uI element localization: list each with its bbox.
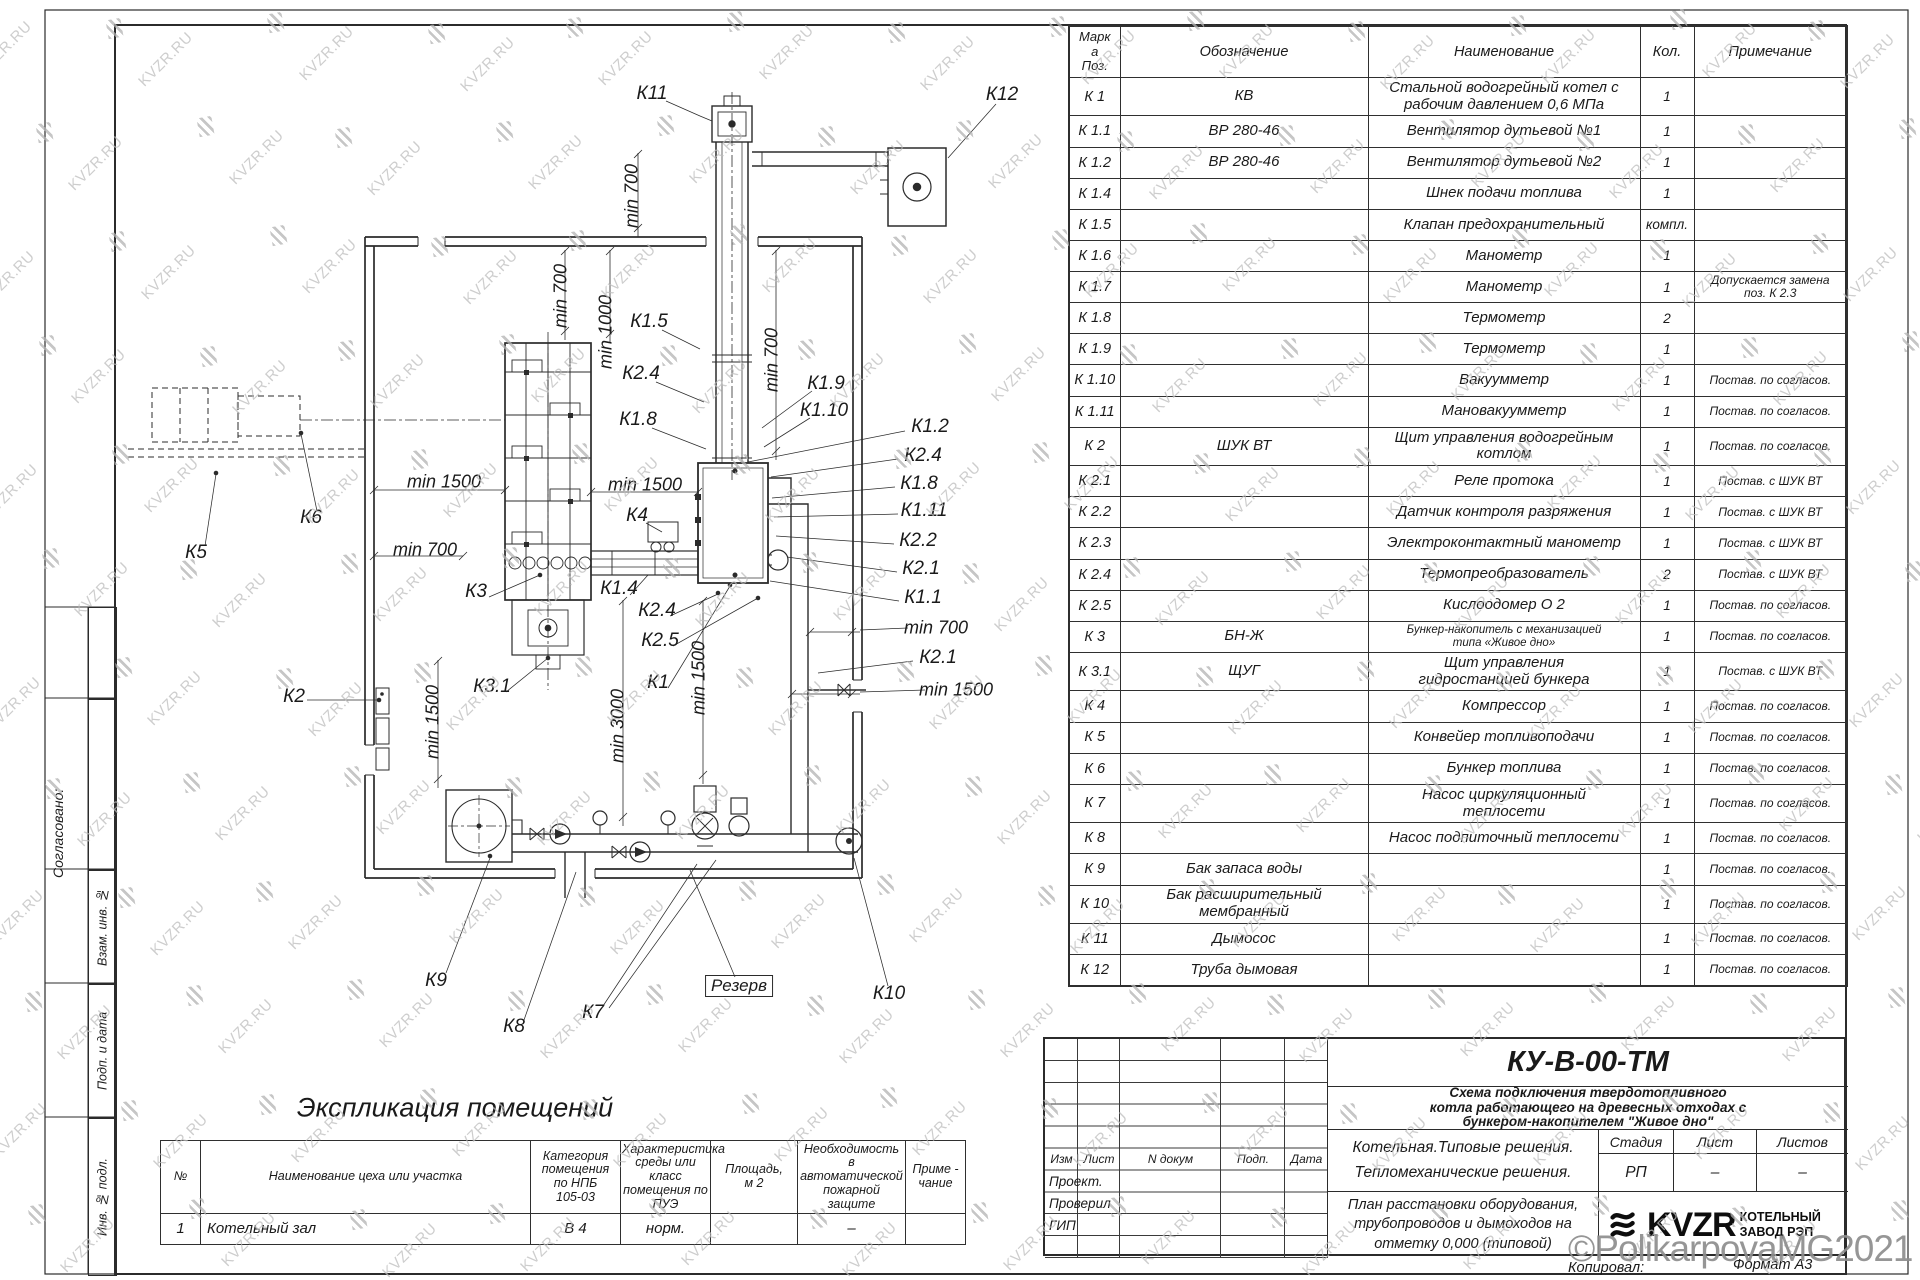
plan-dimension-label: min 1000 xyxy=(596,295,617,369)
spec-cell-name: Реле протока xyxy=(1368,466,1640,497)
spec-cell-note: Постав. по согласов. xyxy=(1694,396,1847,427)
explication-header: Необходимость в автоматической пожарной … xyxy=(798,1141,906,1214)
explication-header: Приме - чание xyxy=(906,1141,966,1214)
plan-position-label: К12 xyxy=(986,84,1018,106)
spec-cell-note xyxy=(1694,147,1847,178)
spec-header-row: Марк а Поз. Обозначение Наименование Кол… xyxy=(1069,26,1847,78)
explication-row: 1Котельный залВ 4норм.– xyxy=(161,1214,966,1245)
spec-cell-des: БН-Ж xyxy=(1120,621,1368,652)
plan-dimension-label: min 700 xyxy=(393,540,457,561)
spec-cell-note xyxy=(1694,116,1847,147)
plan-position-label: К1.10 xyxy=(800,400,848,422)
spec-cell-qty: 1 xyxy=(1640,334,1694,365)
spec-cell-name: Датчик контроля разряжения xyxy=(1368,497,1640,528)
plan-position-label: К2.5 xyxy=(641,630,679,652)
spec-cell-note: Постав. по согласов. xyxy=(1694,691,1847,722)
spec-cell-pos: К 2.1 xyxy=(1069,466,1120,497)
spec-cell-pos: К 1.4 xyxy=(1069,178,1120,209)
spec-cell-name: Вакуумметр xyxy=(1368,365,1640,396)
spec-row: К 1.5Клапан предохранительныйкомпл. xyxy=(1069,209,1847,240)
spec-cell-note xyxy=(1694,78,1847,116)
plan-dimension-label: min 700 xyxy=(762,328,783,392)
spec-cell-pos: К 2.2 xyxy=(1069,497,1120,528)
spec-cell-name: Стальной водогрейный котел с рабочим дав… xyxy=(1368,78,1640,116)
stage-value: – xyxy=(1674,1154,1757,1192)
spec-cell-qty: 1 xyxy=(1640,528,1694,559)
spec-cell-name: Компрессор xyxy=(1368,691,1640,722)
flue-box xyxy=(880,148,946,226)
change-table: ИзмЛистN докумПодп.Дата Проект.ПроверилГ… xyxy=(1045,1039,1328,1258)
plan-dimension-label: min 1500 xyxy=(689,641,710,715)
spec-cell-note: Постав. по согласов. xyxy=(1694,722,1847,753)
spec-cell-qty: 1 xyxy=(1640,147,1694,178)
plan-position-label: К1.8 xyxy=(619,409,657,431)
plan-dimension-label: min 1500 xyxy=(608,475,682,496)
stage-value: – xyxy=(1757,1154,1848,1192)
spec-cell-note xyxy=(1694,334,1847,365)
stage-value: РП xyxy=(1599,1154,1674,1192)
spec-cell-pos: К 3.1 xyxy=(1069,652,1120,690)
spec-row: К 1.6Манометр1 xyxy=(1069,240,1847,271)
change-col-label: Дата xyxy=(1285,1148,1328,1170)
stage-headers: СтадияЛистЛистов xyxy=(1599,1130,1848,1154)
spec-cell-qty: 1 xyxy=(1640,178,1694,209)
explication-header: Категория помещения по НПБ 105-03 xyxy=(531,1141,621,1214)
spec-cell-note: Допускается замена поз. К 2.3 xyxy=(1694,272,1847,303)
spec-row: К 5Конвейер топливоподачи1Постав. по сог… xyxy=(1069,722,1847,753)
spec-cell-pos: К 1.5 xyxy=(1069,209,1120,240)
spec-cell-qty: 1 xyxy=(1640,466,1694,497)
explication-cell xyxy=(906,1214,966,1245)
podp-label: Подп. и дата xyxy=(89,984,116,1118)
plan-dimension-label: min 1500 xyxy=(407,472,481,493)
spec-cell-qty: 1 xyxy=(1640,427,1694,465)
spec-cell-des: ШУК ВТ xyxy=(1120,427,1368,465)
spec-cell-note: Постав. по согласов. xyxy=(1694,955,1847,986)
explication-header: Характеристика среды или класс помещения… xyxy=(621,1141,711,1214)
spec-cell-pos: К 1 xyxy=(1069,78,1120,116)
spec-header-pos: Марк а Поз. xyxy=(1069,26,1120,78)
spec-cell-pos: К 1.2 xyxy=(1069,147,1120,178)
plan-dimension-label: min 700 xyxy=(904,618,968,639)
spec-cell-pos: К 1.10 xyxy=(1069,365,1120,396)
plan-position-label: К2 xyxy=(283,686,305,708)
spec-cell-qty: 1 xyxy=(1640,116,1694,147)
spec-row: К 1.1ВР 280-46Вентилятор дутьевой №11 xyxy=(1069,116,1847,147)
spec-cell-qty: 1 xyxy=(1640,590,1694,621)
project-name: Котельная.Типовые решения. Тепломеханиче… xyxy=(1328,1130,1599,1192)
margin-cell-podp: Подп. и дата xyxy=(88,983,117,1119)
spec-cell-name: Клапан предохранительный xyxy=(1368,209,1640,240)
spec-cell-note: Постав. по согласов. xyxy=(1694,784,1847,822)
spec-row: К 3БН-ЖБункер-накопитель с механизацией … xyxy=(1069,621,1847,652)
explication-table: №Наименование цеха или участкаКатегория … xyxy=(160,1140,965,1240)
plan-position-label: К11 xyxy=(637,83,668,105)
fuel-screw xyxy=(509,557,591,569)
plan-position-label: К1.9 xyxy=(807,373,845,395)
spec-cell-name: Термометр xyxy=(1368,334,1640,365)
spec-row: К 12Труба дымовая1Постав. по согласов. xyxy=(1069,955,1847,986)
plan-position-label: К3.1 xyxy=(473,676,511,698)
role-label: ГИП xyxy=(1049,1214,1149,1236)
spec-cell-note xyxy=(1694,209,1847,240)
spec-cell-note: Постав. по согласов. xyxy=(1694,427,1847,465)
spec-cell-qty: 1 xyxy=(1640,365,1694,396)
role-label: Проект. xyxy=(1049,1170,1149,1192)
explication-cell: норм. xyxy=(621,1214,711,1245)
plan-position-label: К3 xyxy=(465,581,487,603)
spec-cell-des: Труба дымовая xyxy=(1120,955,1368,986)
spec-cell-name xyxy=(1368,923,1640,954)
spec-cell-pos: К 4 xyxy=(1069,691,1120,722)
spec-cell-name: Манометр xyxy=(1368,272,1640,303)
spec-cell-pos: К 11 xyxy=(1069,923,1120,954)
spec-cell-des xyxy=(1120,334,1368,365)
spec-row: К 1.10Вакуумметр1Постав. по согласов. xyxy=(1069,365,1847,396)
spec-cell-name: Щит управления водогрейным котлом xyxy=(1368,427,1640,465)
water-tank xyxy=(446,790,512,862)
spec-cell-note xyxy=(1694,303,1847,334)
spec-cell-qty: 1 xyxy=(1640,823,1694,854)
title-block: ИзмЛистN докумПодп.Дата Проект.ПроверилГ… xyxy=(1043,1037,1846,1256)
spec-cell-qty: 1 xyxy=(1640,885,1694,923)
margin-cell xyxy=(88,607,117,700)
spec-cell-note: Постав. по согласов. xyxy=(1694,823,1847,854)
spec-cell-note: Постав. с ШУК ВТ xyxy=(1694,528,1847,559)
spec-cell-note: Постав. по согласов. xyxy=(1694,854,1847,885)
boiler xyxy=(695,463,788,583)
spec-cell-note: Постав. по согласов. xyxy=(1694,621,1847,652)
spec-cell-pos: К 2.3 xyxy=(1069,528,1120,559)
spec-table-body: К 1КВСтальной водогрейный котел с рабочи… xyxy=(1069,78,1847,987)
spec-cell-name: Манометр xyxy=(1368,240,1640,271)
explication-header-row: №Наименование цеха или участкаКатегория … xyxy=(161,1141,966,1214)
spec-cell-name: Электроконтактный манометр xyxy=(1368,528,1640,559)
plan-position-label: К1.1 xyxy=(904,587,942,609)
spec-cell-name: Мановакуумметр xyxy=(1368,396,1640,427)
spec-header-name: Наименование xyxy=(1368,26,1640,78)
spec-cell-des: Бак расширительный мембранный xyxy=(1120,885,1368,923)
spec-cell-qty: 1 xyxy=(1640,652,1694,690)
spec-cell-des: Дымосос xyxy=(1120,923,1368,954)
title-block-right: КУ-В-00-ТМ Схема подключения твердотопли… xyxy=(1328,1039,1848,1258)
spec-cell-note xyxy=(1694,178,1847,209)
spec-cell-qty: 1 xyxy=(1640,396,1694,427)
plan-position-label: К1.2 xyxy=(911,416,949,438)
spec-cell-name xyxy=(1368,854,1640,885)
spec-cell-pos: К 6 xyxy=(1069,753,1120,784)
explication-cell: Котельный зал xyxy=(201,1214,531,1245)
spec-row: К 1.11Мановакуумметр1Постав. по согласов… xyxy=(1069,396,1847,427)
change-col-label: N докум xyxy=(1120,1148,1221,1170)
spec-row: К 9Бак запаса воды1Постав. по согласов. xyxy=(1069,854,1847,885)
margin-cell xyxy=(88,698,117,871)
explication-cell: В 4 xyxy=(531,1214,621,1245)
plan-dimension-label: min 700 xyxy=(551,264,572,328)
spec-cell-des xyxy=(1120,691,1368,722)
sheet-title: План расстановки оборудования, трубопров… xyxy=(1328,1192,1599,1258)
plan-position-label: К9 xyxy=(425,970,447,992)
spec-cell-qty: 1 xyxy=(1640,272,1694,303)
plan-position-label: К1 xyxy=(647,672,669,694)
spec-cell-des xyxy=(1120,272,1368,303)
spec-cell-qty: 2 xyxy=(1640,303,1694,334)
vzam-label: Взам. инв. № xyxy=(89,870,116,984)
margin-cell-inv: Инв. № подл. xyxy=(88,1117,117,1276)
spec-cell-name: Вентилятор дутьевой №1 xyxy=(1368,116,1640,147)
explication-cell: – xyxy=(798,1214,906,1245)
spec-row: К 4Компрессор1Постав. по согласов. xyxy=(1069,691,1847,722)
spec-cell-des xyxy=(1120,753,1368,784)
plan-position-label: К1.5 xyxy=(630,311,668,333)
spec-cell-name: Насос подпиточный теплосети xyxy=(1368,823,1640,854)
plan-position-label: К2.4 xyxy=(904,445,942,467)
spec-cell-des xyxy=(1120,396,1368,427)
spec-cell-note: Постав. по согласов. xyxy=(1694,753,1847,784)
spec-cell-pos: К 8 xyxy=(1069,823,1120,854)
spec-cell-note: Постав. с ШУК ВТ xyxy=(1694,652,1847,690)
spec-cell-pos: К 1.8 xyxy=(1069,303,1120,334)
spec-cell-name: Кислоодомер О 2 xyxy=(1368,590,1640,621)
plan-position-label: К1.8 xyxy=(900,473,938,495)
drawing-sheet: { "page": { "copyright": "©PolikarpovaMG… xyxy=(0,0,1920,1280)
spec-cell-note: Постав. по согласов. xyxy=(1694,923,1847,954)
spec-cell-des xyxy=(1120,528,1368,559)
spec-cell-qty: 1 xyxy=(1640,78,1694,116)
spec-row: К 6Бункер топлива1Постав. по согласов. xyxy=(1069,753,1847,784)
plan-position-label: К8 xyxy=(503,1016,525,1038)
plan-position-label: К4 xyxy=(626,505,648,527)
spec-cell-pos: К 1.9 xyxy=(1069,334,1120,365)
spec-row: К 7Насос циркуляционный теплосети1Постав… xyxy=(1069,784,1847,822)
spec-cell-qty: 1 xyxy=(1640,240,1694,271)
spec-cell-note: Постав. по согласов. xyxy=(1694,590,1847,621)
spec-cell-des xyxy=(1120,466,1368,497)
spec-cell-note: Постав. с ШУК ВТ xyxy=(1694,559,1847,590)
spec-cell-name: Бункер топлива xyxy=(1368,753,1640,784)
spec-cell-des xyxy=(1120,365,1368,396)
spec-header-designation: Обозначение xyxy=(1120,26,1368,78)
spec-cell-des xyxy=(1120,722,1368,753)
plan-position-label: К2.2 xyxy=(899,530,937,552)
spec-cell-des xyxy=(1120,240,1368,271)
spec-row: К 11Дымосос1Постав. по согласов. xyxy=(1069,923,1847,954)
doc-description: Схема подключения твердотопливного котла… xyxy=(1328,1087,1848,1130)
plan-position-label: К2.4 xyxy=(638,600,676,622)
spec-row: К 1КВСтальной водогрейный котел с рабочи… xyxy=(1069,78,1847,116)
spec-cell-pos: К 1.11 xyxy=(1069,396,1120,427)
spec-cell-name: Конвейер топливоподачи xyxy=(1368,722,1640,753)
external-storage xyxy=(128,388,367,457)
plan-dimension-label: min 3000 xyxy=(608,689,629,763)
spec-cell-des xyxy=(1120,823,1368,854)
spec-row: К 1.4Шнек подачи топлива1 xyxy=(1069,178,1847,209)
plan-position-label: К10 xyxy=(873,983,905,1005)
spec-cell-note: Постав. с ШУК ВТ xyxy=(1694,497,1847,528)
spec-cell-pos: К 1.6 xyxy=(1069,240,1120,271)
spec-cell-pos: К 5 xyxy=(1069,722,1120,753)
fuel-conveyor xyxy=(591,551,698,575)
plan-position-label: К2.1 xyxy=(919,647,957,669)
spec-cell-qty: 1 xyxy=(1640,753,1694,784)
spec-cell-note: Постав. с ШУК ВТ xyxy=(1694,466,1847,497)
spec-cell-name xyxy=(1368,885,1640,923)
spec-cell-des xyxy=(1120,303,1368,334)
spec-cell-pos: К 2.4 xyxy=(1069,559,1120,590)
spec-cell-name: Шнек подачи топлива xyxy=(1368,178,1640,209)
leader-lines xyxy=(205,101,996,1020)
plan-dimension-label: min 1500 xyxy=(919,680,993,701)
spec-cell-pos: К 1.7 xyxy=(1069,272,1120,303)
stage-header: Лист xyxy=(1674,1130,1757,1153)
spec-row: К 2.3Электроконтактный манометр1Постав. … xyxy=(1069,528,1847,559)
spec-row: К 2ШУК ВТЩит управления водогрейным котл… xyxy=(1069,427,1847,465)
change-col-label: Подп. xyxy=(1221,1148,1285,1170)
spec-cell-pos: К 12 xyxy=(1069,955,1120,986)
spec-table: Марк а Поз. Обозначение Наименование Кол… xyxy=(1068,25,1846,987)
change-col-label: Изм xyxy=(1045,1148,1078,1170)
plan-position-label: К6 xyxy=(300,507,322,529)
spec-header-qty: Кол. xyxy=(1640,26,1694,78)
spec-cell-name: Термометр xyxy=(1368,303,1640,334)
spec-cell-des: Бак запаса воды xyxy=(1120,854,1368,885)
spec-cell-qty: 1 xyxy=(1640,691,1694,722)
spec-cell-name xyxy=(1368,955,1640,986)
spec-cell-name: Щит управления гидростанцией бункера xyxy=(1368,652,1640,690)
spec-row: К 2.2Датчик контроля разряжения1Постав. … xyxy=(1069,497,1847,528)
stage-values: РП–– xyxy=(1599,1154,1848,1192)
stage-header: Листов xyxy=(1757,1130,1848,1153)
spec-cell-pos: К 3 xyxy=(1069,621,1120,652)
spec-cell-pos: К 9 xyxy=(1069,854,1120,885)
flue-duct xyxy=(752,152,888,166)
spec-cell-des xyxy=(1120,209,1368,240)
spec-cell-note xyxy=(1694,240,1847,271)
plan-position-label: К1.4 xyxy=(600,578,638,600)
copyright-watermark: ©PolikarpovaMG2021 xyxy=(1568,1228,1913,1270)
spec-cell-des xyxy=(1120,178,1368,209)
spec-cell-qty: 2 xyxy=(1640,559,1694,590)
spec-cell-qty: 1 xyxy=(1640,854,1694,885)
plan-position-label: К1.11 xyxy=(901,500,948,522)
spec-cell-name: Бункер-накопитель с механизацией типа «Ж… xyxy=(1368,621,1640,652)
plan-dimension-label: min 700 xyxy=(622,164,643,228)
spec-cell-qty: 1 xyxy=(1640,784,1694,822)
spec-row: К 10Бак расширительный мембранный1Постав… xyxy=(1069,885,1847,923)
change-cols-row: ИзмЛистN докумПодп.Дата xyxy=(1045,1148,1328,1170)
explication-cell: 1 xyxy=(161,1214,201,1245)
spec-cell-pos: К 2.5 xyxy=(1069,590,1120,621)
spec-row: К 1.7Манометр1Допускается замена поз. К … xyxy=(1069,272,1847,303)
explication-body: 1Котельный залВ 4норм.– xyxy=(161,1214,966,1245)
spec-cell-pos: К 1.1 xyxy=(1069,116,1120,147)
spec-row: К 1.9Термометр1 xyxy=(1069,334,1847,365)
stage-table: СтадияЛистЛистов РП–– xyxy=(1599,1130,1848,1192)
spec-cell-des: ВР 280-46 xyxy=(1120,116,1368,147)
spec-cell-des xyxy=(1120,590,1368,621)
spec-cell-pos: К 10 xyxy=(1069,885,1120,923)
spec-row: К 8Насос подпиточный теплосети1Постав. п… xyxy=(1069,823,1847,854)
change-col-label: Лист xyxy=(1078,1148,1120,1170)
spec-cell-des xyxy=(1120,784,1368,822)
spec-cell-pos: К 7 xyxy=(1069,784,1120,822)
plan-position-label: Резерв xyxy=(705,975,773,997)
spec-row: К 2.4Термопреобразователь2Постав. с ШУК … xyxy=(1069,559,1847,590)
spec-cell-qty: компл. xyxy=(1640,209,1694,240)
spec-row: К 3.1ЩУГЩит управления гидростанцией бун… xyxy=(1069,652,1847,690)
spec-cell-des: КВ xyxy=(1120,78,1368,116)
spec-row: К 2.1Реле протока1Постав. с ШУК ВТ xyxy=(1069,466,1847,497)
stage-header: Стадия xyxy=(1599,1130,1674,1153)
spec-cell-qty: 1 xyxy=(1640,923,1694,954)
spec-cell-qty: 1 xyxy=(1640,722,1694,753)
spec-cell-pos: К 2 xyxy=(1069,427,1120,465)
explication-title: Экспликация помещений xyxy=(297,1093,613,1124)
plan-dimension-label: min 1500 xyxy=(423,685,444,759)
spec-header-note: Примечание xyxy=(1694,26,1847,78)
explication-header: № xyxy=(161,1141,201,1214)
spec-cell-note: Постав. по согласов. xyxy=(1694,365,1847,396)
plan-position-label: К5 xyxy=(185,542,207,564)
approved-label: Сог­ласовано: xyxy=(50,728,66,878)
spec-row: К 2.5Кислоодомер О 21Постав. по согласов… xyxy=(1069,590,1847,621)
spec-row: К 1.8Термометр2 xyxy=(1069,303,1847,334)
role-label: Проверил xyxy=(1049,1192,1149,1214)
plan-position-label: К2.4 xyxy=(622,363,660,385)
explication-cell xyxy=(711,1214,798,1245)
spec-cell-name: Термопреобразователь xyxy=(1368,559,1640,590)
spec-row: К 1.2ВР 280-46Вентилятор дутьевой №21 xyxy=(1069,147,1847,178)
explication-header: Наименование цеха или участка xyxy=(201,1141,531,1214)
plan-position-label: К7 xyxy=(582,1002,604,1024)
spec-cell-des xyxy=(1120,497,1368,528)
spec-cell-name: Насос циркуляционный теплосети xyxy=(1368,784,1640,822)
spec-cell-des: ЩУГ xyxy=(1120,652,1368,690)
margin-cell-vzam: Взам. инв. № xyxy=(88,869,117,985)
spec-cell-qty: 1 xyxy=(1640,955,1694,986)
inv-label: Инв. № подл. xyxy=(89,1118,116,1275)
spec-cell-des: ВР 280-46 xyxy=(1120,147,1368,178)
spec-cell-qty: 1 xyxy=(1640,497,1694,528)
doc-code: КУ-В-00-ТМ xyxy=(1328,1039,1848,1087)
spec-cell-qty: 1 xyxy=(1640,621,1694,652)
spec-cell-des xyxy=(1120,559,1368,590)
spec-cell-name: Вентилятор дутьевой №2 xyxy=(1368,147,1640,178)
spec-cell-note: Постав. по согласов. xyxy=(1694,885,1847,923)
plan-position-label: К2.1 xyxy=(902,558,940,580)
